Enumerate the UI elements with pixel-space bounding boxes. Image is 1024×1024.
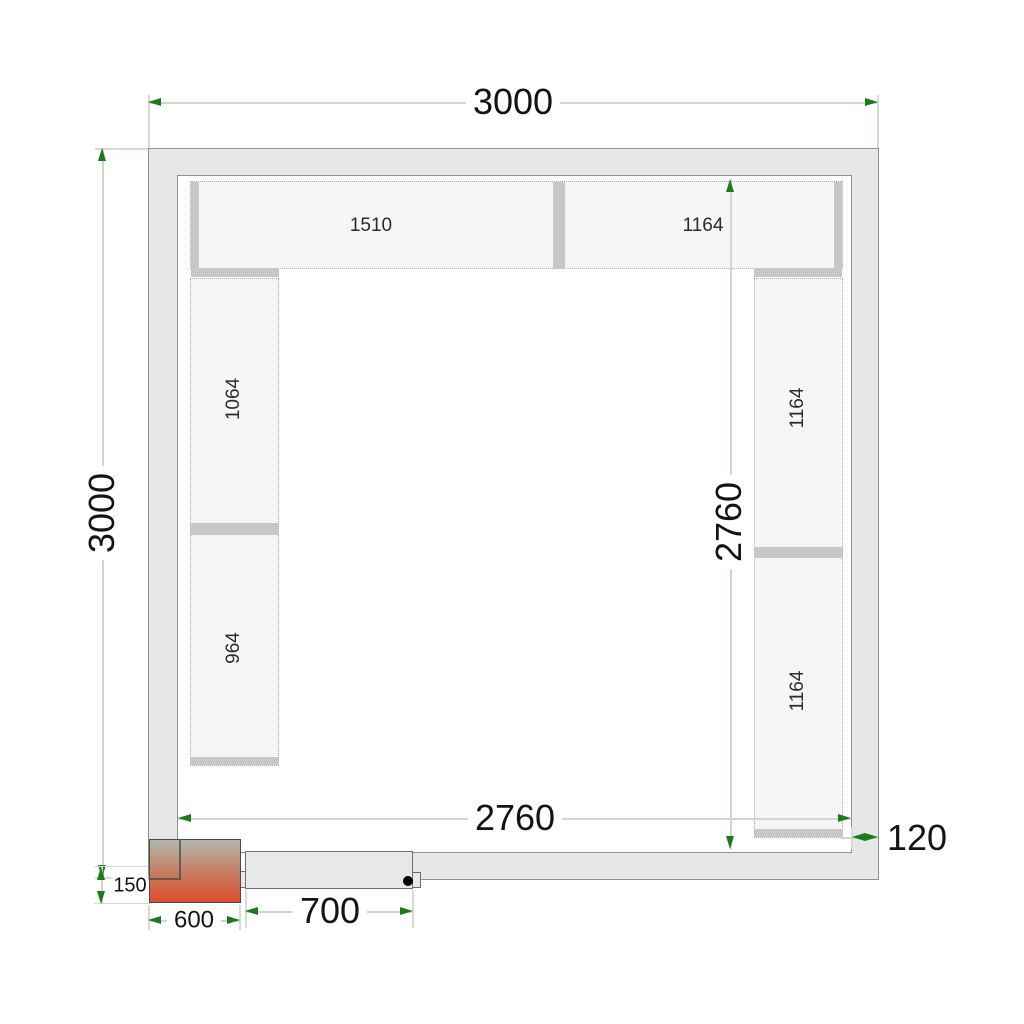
shelf-label-top-left: 1510 [350,215,392,237]
dim-arrow-right [227,916,240,924]
dim-arrow-right [400,907,413,915]
shelf-label-right-upper: 1164 [787,388,809,429]
dim-label-door-opening: 700 [293,892,367,930]
dim-arrow-down [726,836,734,849]
dim-label-wall-thickness: 120 [880,819,954,857]
floor-plan-canvas: 1510 1164 1064 964 1164 1164 3000 3000 2… [0,0,1024,1024]
dim-arrow-left [178,814,191,822]
shelf-support-top-right-vertical [834,182,842,268]
dim-arrow-right [838,814,851,822]
shelf-label-right-lower: 1164 [787,671,809,712]
dim-label-unit-width: 600 [167,907,221,932]
dim-arrow-up [97,867,105,880]
shelf-right-column [754,278,843,838]
shelf-divider-right-column [754,547,843,558]
shelf-left-column [190,278,279,766]
shelf-label-left-upper: 1064 [223,378,245,420]
dim-arrow-left [148,98,161,106]
dim-label-inner-width: 2760 [468,799,562,837]
shelf-support-left-bottom [190,757,279,765]
dim-arrow-left [245,907,258,915]
dim-arrow-down [97,891,105,904]
dim-arrow-up [98,148,106,161]
dim-arrow-left [852,833,865,841]
door-frame-notch-right [412,872,421,888]
dim-arrow-up [726,179,734,192]
dim-arrow-right [865,833,878,841]
dim-arrow-left [148,916,161,924]
shelf-divider-top-band [553,182,565,269]
dim-label-inner-depth: 2760 [710,475,748,569]
shelf-support-top-left-vertical [191,182,199,268]
shelf-support-corner-top-left [191,268,279,277]
dim-arrow-right [865,98,878,106]
dim-label-unit-offset: 150 [111,876,148,897]
shelf-divider-left-column [190,523,279,535]
dim-label-overall-depth: 3000 [83,466,121,560]
shelf-label-top-right: 1164 [683,215,724,237]
shelf-label-left-lower: 964 [223,632,245,664]
shelf-support-corner-top-right [754,268,842,277]
wall-edge-over-unit-horizontal [149,878,181,880]
wall-edge-over-unit-vertical [179,839,181,879]
refrigeration-unit [149,839,241,903]
shelf-support-right-bottom [754,829,843,837]
door-leaf [245,851,413,889]
dim-label-overall-width: 3000 [466,83,560,121]
door-handle-dot [403,876,413,886]
shelf-top-band [190,181,843,269]
